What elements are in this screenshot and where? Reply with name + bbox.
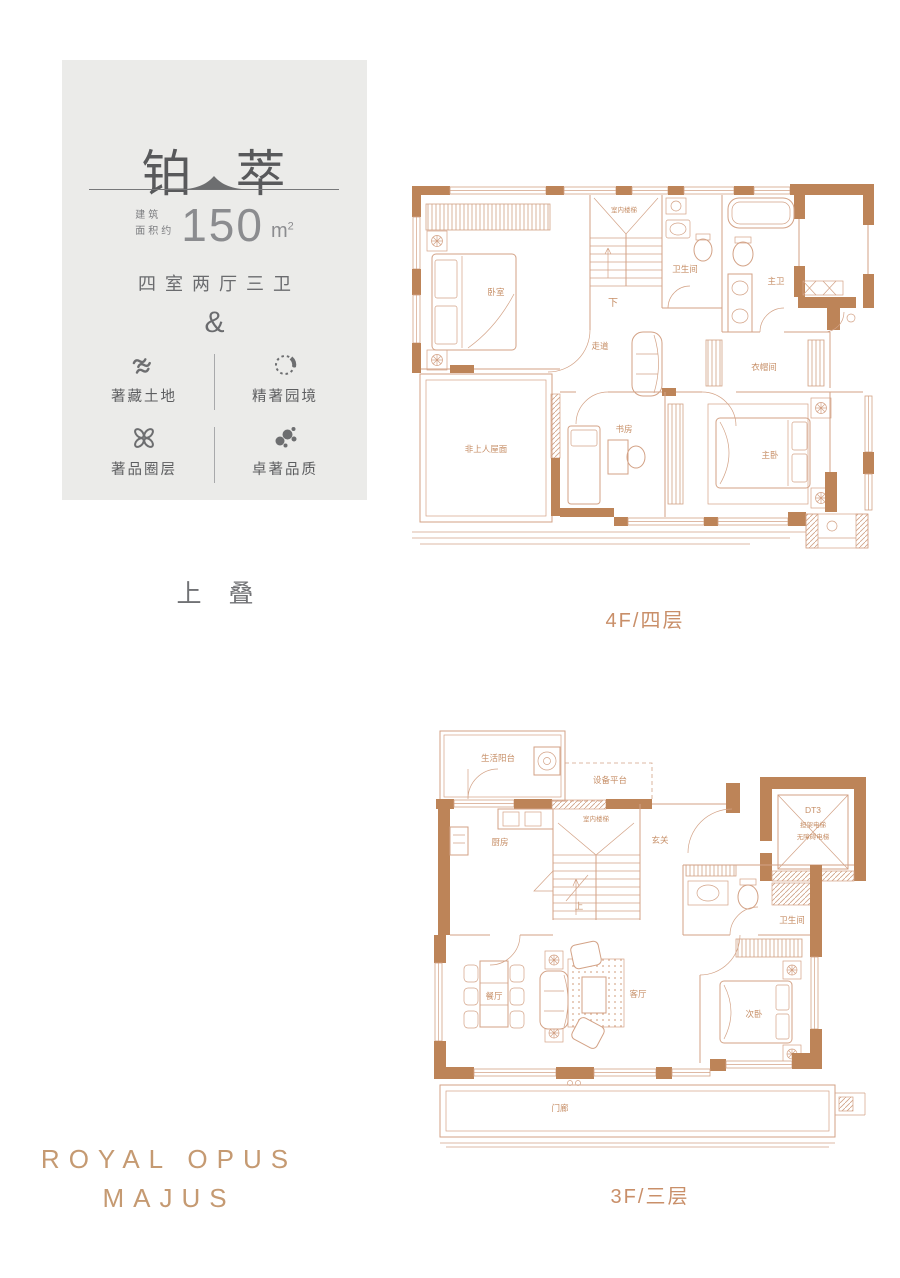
elevator-label: DT3 xyxy=(805,805,821,815)
room-label-roof: 非上人屋面 xyxy=(465,444,508,454)
floor-label-3f: 3F/三层 xyxy=(420,1180,880,1209)
area-row: 建筑 面积约 150 m2 xyxy=(62,206,367,245)
wardrobe xyxy=(426,204,550,230)
garden-circle-icon xyxy=(227,350,343,380)
room-label-bath-3f: 卫生间 xyxy=(779,915,805,925)
armchair xyxy=(570,940,602,969)
room-label-bath-4f: 卫生间 xyxy=(672,264,698,274)
land-waves-icon xyxy=(86,350,202,380)
room-second-bedroom-3f: 次卧 xyxy=(700,929,822,1071)
stairs-up-label: 上 xyxy=(575,901,584,911)
stairs-4f: 室内楼梯 下 xyxy=(590,195,662,309)
brand-line-2: MAJUS xyxy=(36,1179,302,1218)
room-label-master-bedroom: 主卧 xyxy=(761,450,779,460)
room-master-bedroom-4f: 主卧 xyxy=(668,392,837,512)
corridor-4f: 走道 xyxy=(591,332,662,396)
room-layout-text: 四室两厅三卫 xyxy=(62,270,367,296)
room-label-equipment: 设备平台 xyxy=(593,775,627,785)
area-prefix: 建筑 面积约 xyxy=(135,208,174,245)
floorplan-poster: 铂 萃 建筑 面积约 150 m2 四室两厅三卫 & xyxy=(0,0,900,1278)
feature-garden: 精著园境 xyxy=(227,350,343,406)
fridge xyxy=(450,827,468,855)
desk xyxy=(608,440,628,474)
quality-dots-icon xyxy=(227,423,343,453)
room-label-stairs-4f: 室内楼梯 xyxy=(611,205,638,214)
room-label-master-bath: 主卫 xyxy=(767,276,785,286)
room-label-dining: 餐厅 xyxy=(485,991,503,1001)
feature-quality: 卓著品质 xyxy=(227,423,343,479)
stack-type-label: 上 叠 xyxy=(120,574,310,610)
room-label-porch: 门廊 xyxy=(551,1103,569,1113)
area-value: 150 xyxy=(181,206,264,245)
feature-divider xyxy=(214,354,215,410)
title-divider xyxy=(89,174,339,192)
stairs-down-label: 下 xyxy=(608,298,618,309)
bottom-walls-4f xyxy=(412,396,874,548)
room-bedroom-4f: 卧室 xyxy=(421,195,590,373)
knot-icon xyxy=(86,423,202,453)
room-label-balcony: 生活阳台 xyxy=(481,753,515,763)
room-living-3f: 客厅 xyxy=(540,940,647,1050)
area-unit: m2 xyxy=(271,220,294,245)
foyer-3f: 玄关 xyxy=(651,809,732,853)
brand-wordmark: ROYAL OPUS MAJUS xyxy=(36,1140,302,1218)
plant-stand xyxy=(545,951,563,969)
equipment-platform-3f: 设备平台 xyxy=(565,763,652,801)
nightstand xyxy=(811,398,831,418)
feature-divider xyxy=(214,427,215,483)
room-label-kitchen: 厨房 xyxy=(491,837,508,847)
elevator-note-1: 担架电梯 xyxy=(800,820,827,829)
floor-label-4f: 4F/四层 xyxy=(410,604,880,633)
void-area-4f xyxy=(790,184,874,332)
nightstand xyxy=(783,961,801,979)
brand-line-1: ROYAL OPUS xyxy=(36,1140,302,1179)
room-kitchen-3f: 厨房 xyxy=(450,809,553,965)
sofa xyxy=(540,971,568,1029)
room-balcony-3f: 生活阳台 xyxy=(440,731,565,801)
chair xyxy=(627,446,645,468)
elevator-note-2: 无障碍电梯 xyxy=(797,832,830,841)
partition-4f xyxy=(560,388,863,426)
floor-plan-4f: 卧室 室内楼梯 下 卫生间 xyxy=(410,182,880,560)
porch-3f: 门廊 xyxy=(440,1067,865,1147)
nightstand xyxy=(427,350,447,370)
ampersand: & xyxy=(62,306,367,340)
info-card: 铂 萃 建筑 面积约 150 m2 四室两厅三卫 & xyxy=(62,60,367,500)
walls-3f xyxy=(436,783,740,935)
room-label-study: 书房 xyxy=(615,424,632,434)
room-label-living: 客厅 xyxy=(629,989,647,999)
room-label-foyer: 玄关 xyxy=(651,835,669,845)
floor-plan-3f: 生活阳台 设备平台 DT3 担架电梯 xyxy=(420,723,880,1153)
room-label-second-bedroom: 次卧 xyxy=(745,1009,763,1019)
room-cloakroom-4f: 衣帽间 xyxy=(706,332,830,388)
room-bath-4f: 卫生间 xyxy=(662,195,722,332)
room-master-bath-4f: 主卫 xyxy=(722,198,830,332)
sofa xyxy=(632,332,662,396)
stairs-3f: 室内楼梯 上 xyxy=(553,804,640,920)
room-label-stairs-3f: 室内楼梯 xyxy=(583,814,610,823)
bed xyxy=(432,254,516,350)
room-label-cloakroom: 衣帽间 xyxy=(751,362,777,372)
feature-circle: 著品圈层 xyxy=(86,423,202,479)
room-roof-4f: 非上人屋面 xyxy=(420,374,552,522)
room-label-corridor: 走道 xyxy=(591,341,609,351)
feature-land: 著藏土地 xyxy=(86,350,202,406)
room-label-bedroom-4f: 卧室 xyxy=(487,287,505,297)
plan-title: 铂 萃 xyxy=(62,134,367,206)
feature-grid: 著藏土地 精著园境 xyxy=(62,350,367,496)
room-study-4f: 书房 xyxy=(551,392,665,517)
nightstand xyxy=(427,231,447,251)
coffee-table xyxy=(582,977,606,1013)
single-bed xyxy=(568,426,600,504)
